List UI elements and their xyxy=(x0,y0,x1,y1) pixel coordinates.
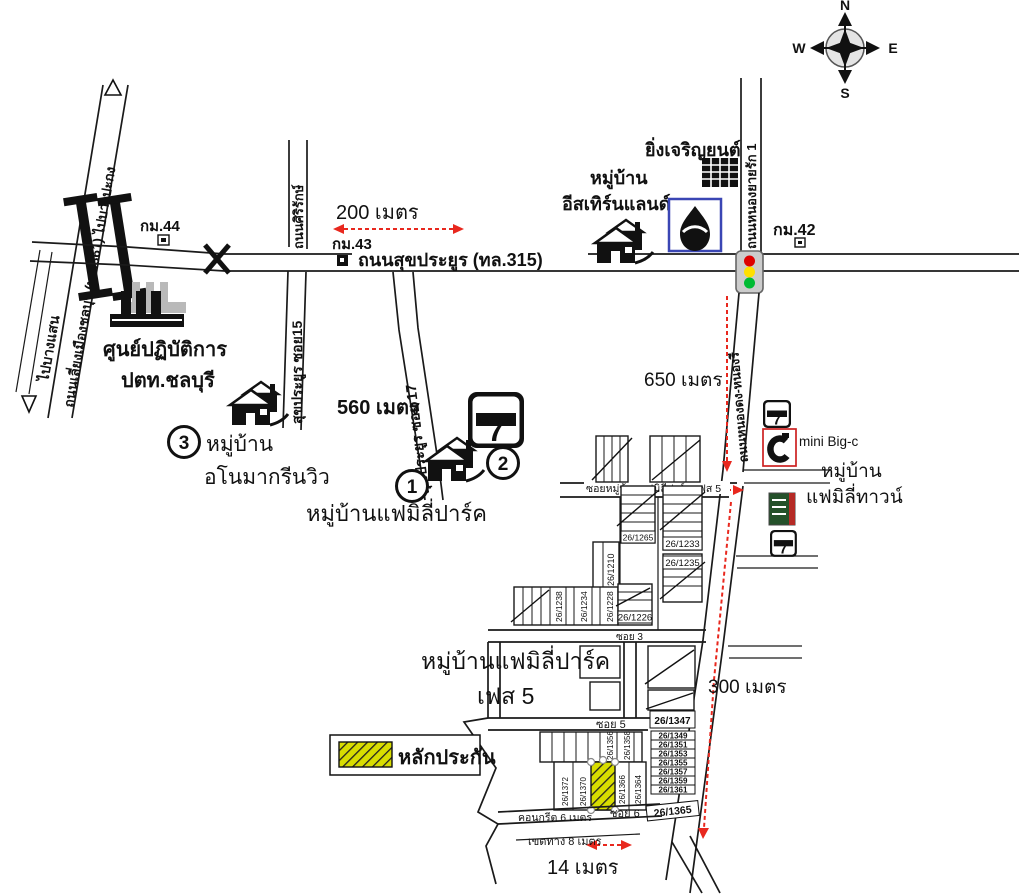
distance-650m-label: 650 เมตร xyxy=(644,370,723,391)
family-town-line2: แฟมิลี่ทาวน์ xyxy=(806,483,903,508)
plot-1351-label: 26/1351 xyxy=(659,741,688,750)
plot-block-1235: 26/1235 xyxy=(660,554,705,602)
concrete6m-label: คอนกรีต 6 เมตร xyxy=(518,811,592,824)
houses-icon xyxy=(595,220,653,263)
plot-1359-label: 26/1359 xyxy=(659,777,688,786)
compass-rose-icon: N S W E xyxy=(792,0,897,101)
seven-eleven-icon xyxy=(770,530,797,558)
village-eastern-land: หมู่บ้าน อีสเทิร์นแลนด์ xyxy=(562,168,671,263)
sukprayoon-road: ถนนสุขประยูร (ทล.315) xyxy=(30,242,1019,273)
plot-1370-label: 26/1370 xyxy=(579,777,588,806)
seven-eleven-icon xyxy=(763,400,791,429)
family-town-line1: หมู่บ้าน xyxy=(821,461,882,482)
distance-200m-label: 200 เมตร xyxy=(336,202,419,224)
distance-14m-label: 14 เมตร xyxy=(547,857,619,879)
nong-yai-rak-road-label: ถนนหนองยายรัก 1 xyxy=(744,144,759,250)
office-building-icon xyxy=(702,158,738,187)
plot-1364-label: 26/1364 xyxy=(634,775,643,804)
km44-marker: กม.44 xyxy=(140,218,180,245)
soi3-label: ซอย 3 xyxy=(616,632,643,643)
traffic-light-icon xyxy=(736,251,763,293)
plot-1210-label: 26/1210 xyxy=(606,553,616,586)
nong-yai-rak-road: ถนนหนองยายรัก 1 xyxy=(741,78,761,252)
collateral-plot xyxy=(591,762,615,810)
plot-1349-label: 26/1349 xyxy=(659,732,688,741)
plot-strip-row-soi5: 26/1356 26/1358 xyxy=(540,731,642,762)
plot-1366-label: 26/1366 xyxy=(618,775,627,804)
anoma-line1: หมู่บ้าน xyxy=(206,433,273,457)
nong-dong-road-label: ถนนหนองดง-หนองรี xyxy=(727,351,751,463)
ptt-station-icon xyxy=(669,199,721,251)
plot-1358-label: 26/1358 xyxy=(623,731,632,760)
anoma-number: 3 xyxy=(179,433,190,454)
plot-1228-label: 26/1228 xyxy=(605,591,615,622)
plot-block-north-1 xyxy=(592,436,632,482)
km42-label: กม.42 xyxy=(773,222,816,239)
plot-1233-label: 26/1233 xyxy=(665,539,699,550)
compass-s-label: S xyxy=(840,85,849,101)
rail-crossing-icon xyxy=(205,245,229,273)
family-park-phase5-line1: หมู่บ้านแฟมิลี่ปาร์ค xyxy=(421,645,610,675)
plot-1355-label: 26/1355 xyxy=(659,759,688,768)
plot-block-1226: 26/1226 xyxy=(616,584,652,625)
plot-1372-label: 26/1372 xyxy=(561,777,570,806)
ying-charoen-yon-label: ยิ่งเจริญยนต์ xyxy=(645,137,741,161)
ptt-center-line1: ศูนย์ปฏิบัติการ xyxy=(103,338,227,363)
seven-eleven-icon xyxy=(468,392,524,448)
ptt-center: ศูนย์ปฏิบัติการ ปตท.ชลบุรี xyxy=(103,282,227,393)
legend-collateral-label: หลักประกัน xyxy=(398,747,496,769)
houses-icon xyxy=(230,382,288,425)
compass-n-label: N xyxy=(840,0,850,13)
village-family-town: หมู่บ้าน แฟมิลี่ทาวน์ xyxy=(806,461,903,508)
plot-strip-row: 26/1238 26/1234 26/1228 xyxy=(511,587,618,625)
sirirak-soi15-road: ถนนศิริรักษ์ สุขประยูร ซอย15 xyxy=(283,140,307,430)
plot-1226-label: 26/1226 xyxy=(618,613,652,624)
ptt-center-line2: ปตท.ชลบุรี xyxy=(121,369,215,393)
village-anoma: 3 หมู่บ้าน อโนมากรีนวิว xyxy=(169,382,330,489)
sirirak-road-label: ถนนศิริรักษ์ xyxy=(291,184,306,249)
family-park-name: หมู่บ้านแฟมิลี่ปาร์ค xyxy=(306,498,487,527)
distance-200m: 200 เมตร xyxy=(333,202,464,234)
plot-block-1210: 26/1210 xyxy=(593,542,619,589)
anoma-line2: อโนมากรีนวิว xyxy=(204,465,330,489)
family-park-phase5-line2: เฟส 5 xyxy=(477,683,534,709)
plot-1357-label: 26/1357 xyxy=(659,768,688,777)
legend: หลักประกัน xyxy=(330,735,496,775)
plot-block-1265: 26/1265 xyxy=(617,486,659,543)
km42-marker: กม.42 xyxy=(773,222,816,247)
distance-560m-label: 560 เมตร xyxy=(337,397,420,419)
eastern-land-line2: อีสเทิร์นแลนด์ xyxy=(562,193,671,214)
plot-1238-label: 26/1238 xyxy=(554,591,564,622)
soi15-label: สุขประยูร ซอย15 xyxy=(289,320,306,424)
plot-1347-label: 26/1347 xyxy=(654,716,691,727)
plot-1265-label: 26/1265 xyxy=(623,533,654,543)
eastern-land-line1: หมู่บ้าน xyxy=(590,168,648,190)
sukprayoon-road-label: ถนนสุขประยูร (ทล.315) xyxy=(358,250,543,272)
plot-block-north-2 xyxy=(650,436,700,482)
to-bangsaen-label: ไปบางแสน xyxy=(34,314,63,385)
family-park-number2: 2 xyxy=(498,454,509,475)
soi5-road: ซอย 5 xyxy=(488,718,650,731)
ying-charoen-yon: ยิ่งเจริญยนต์ xyxy=(645,137,741,187)
compass-e-label: E xyxy=(888,40,897,56)
factory-icon xyxy=(110,282,186,327)
km43-label: กม.43 xyxy=(332,236,372,253)
soi3-road: ซอย 3 xyxy=(488,630,706,643)
plot-1361-label: 26/1361 xyxy=(659,786,688,795)
plot-1234-label: 26/1234 xyxy=(579,591,589,622)
compass-w-label: W xyxy=(792,40,806,56)
plot-1235-label: 26/1235 xyxy=(665,558,699,569)
soi6-label: ซอย 6 xyxy=(610,808,640,820)
plot-block-mid-2 xyxy=(645,646,695,710)
map-canvas: ELEVEN 7 N S W E xyxy=(0,0,1019,895)
plot-1353-label: 26/1353 xyxy=(659,750,688,759)
km44-label: กม.44 xyxy=(140,218,180,235)
family-park-number1: 1 xyxy=(407,477,418,498)
bypass-road: ถนนเลี่ยงเมืองชลบุรี (ทล.361) ไปบางปะกง … xyxy=(16,80,128,418)
mini-bigc-label: mini Big-c xyxy=(799,434,859,449)
distance-300m-label: 300 เมตร xyxy=(708,677,787,698)
rightofway8m-label: เขตทาง 8 เมตร xyxy=(528,836,602,848)
soi5-label: ซอย 5 xyxy=(596,719,626,731)
plot-1356-label: 26/1356 xyxy=(606,731,615,760)
supermarket-logo-icon xyxy=(769,493,795,525)
plot-block-1233: 26/1233 xyxy=(660,486,705,550)
legend-collateral-swatch xyxy=(339,742,392,767)
